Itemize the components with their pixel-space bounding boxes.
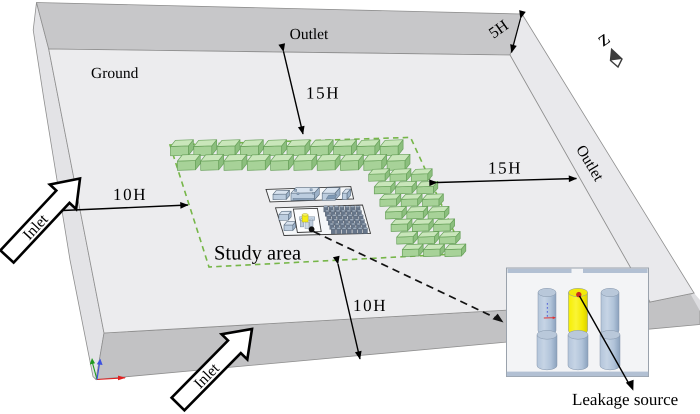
svg-text:10H: 10H xyxy=(113,185,147,204)
svg-text:10H: 10H xyxy=(353,296,387,315)
svg-text:Outlet: Outlet xyxy=(290,26,329,43)
svg-text:15H: 15H xyxy=(488,159,522,178)
svg-text:15H: 15H xyxy=(306,84,340,103)
svg-text:Study area: Study area xyxy=(214,243,301,265)
svg-text:Ground: Ground xyxy=(91,65,139,82)
svg-text:Leakage source: Leakage source xyxy=(572,390,678,409)
